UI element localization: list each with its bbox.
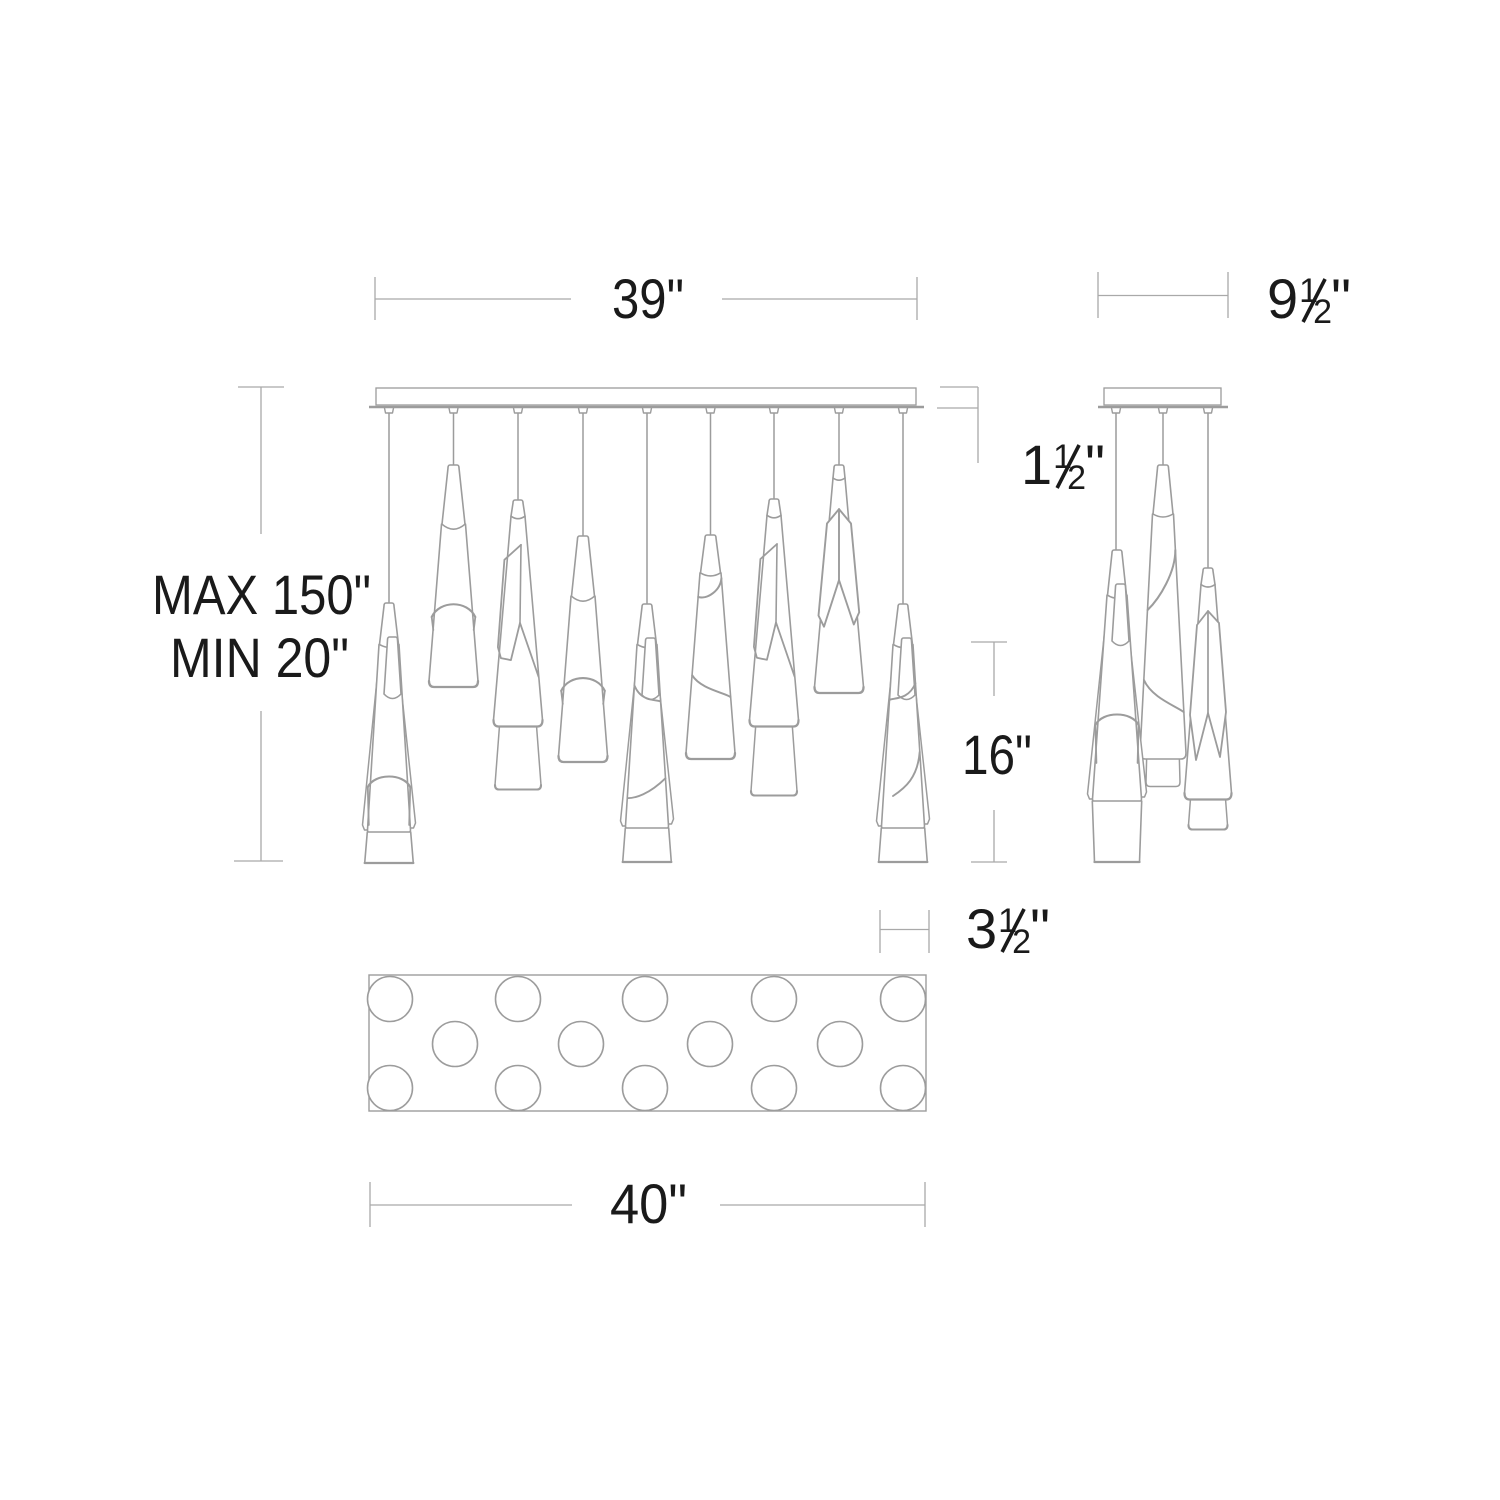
svg-text:3: 3 [966, 897, 997, 960]
svg-text:": " [1085, 433, 1105, 496]
svg-text:2: 2 [1067, 459, 1086, 497]
svg-text:": " [1030, 897, 1050, 960]
svg-text:16": 16" [962, 723, 1032, 786]
svg-text:2: 2 [1313, 293, 1332, 331]
svg-text:1: 1 [1021, 433, 1052, 496]
svg-text:2: 2 [1012, 923, 1031, 961]
svg-text:9: 9 [1267, 267, 1298, 330]
svg-text:40": 40" [610, 1172, 687, 1235]
svg-text:": " [1331, 267, 1351, 330]
svg-text:39": 39" [612, 267, 684, 330]
svg-text:MIN 20": MIN 20" [170, 626, 349, 689]
svg-text:MAX 150": MAX 150" [152, 563, 371, 626]
